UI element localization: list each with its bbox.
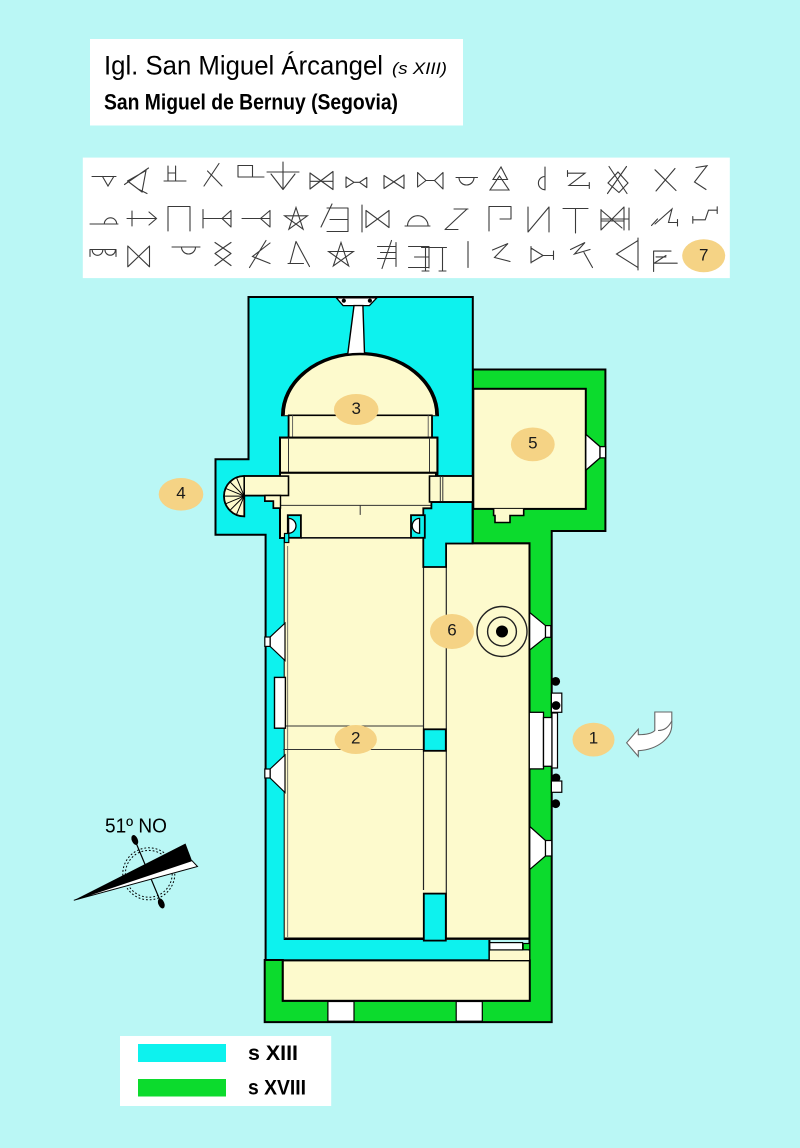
svg-text:51º NO: 51º NO (105, 815, 167, 838)
svg-text:7: 7 (699, 245, 708, 264)
svg-text:San Miguel de Bernuy (Segovia): San Miguel de Bernuy (Segovia) (104, 90, 398, 115)
svg-text:s XIII: s XIII (248, 1042, 298, 1065)
svg-text:2: 2 (351, 729, 360, 748)
svg-text:3: 3 (351, 399, 360, 418)
svg-text:6: 6 (447, 621, 456, 640)
svg-text:(s XIII): (s XIII) (392, 59, 447, 78)
svg-text:5: 5 (528, 434, 537, 453)
svg-text:Igl. San Miguel Árcangel: Igl. San Miguel Árcangel (104, 51, 383, 81)
svg-text:4: 4 (176, 484, 185, 503)
svg-text:s XVIII: s XVIII (248, 1077, 306, 1100)
svg-text:1: 1 (589, 729, 598, 748)
